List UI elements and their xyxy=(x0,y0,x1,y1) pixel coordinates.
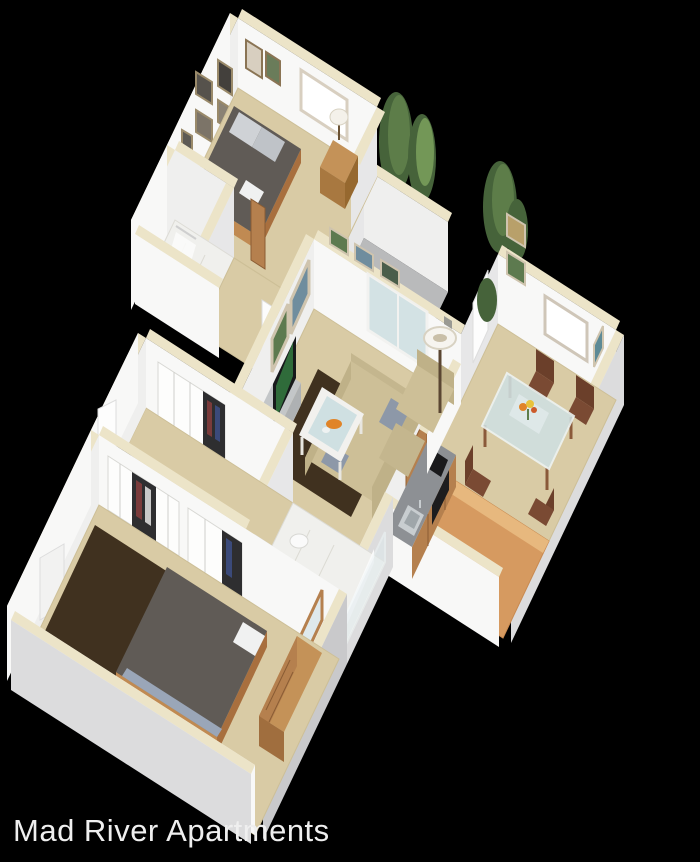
open-door xyxy=(251,199,265,269)
clothes xyxy=(207,400,212,437)
glassware xyxy=(322,427,330,433)
tree-highlight xyxy=(388,95,410,175)
table-lamp xyxy=(330,109,348,125)
clothes xyxy=(136,480,142,520)
toilet xyxy=(290,534,308,548)
clothes xyxy=(226,538,232,578)
clothes xyxy=(145,486,151,526)
food-tray xyxy=(326,419,342,429)
tree-highlight xyxy=(416,118,434,186)
plant-icon xyxy=(477,278,497,322)
clothes xyxy=(215,405,220,442)
caption: Mad River Apartments xyxy=(13,813,330,849)
floorplan-page: Mad River Apartments xyxy=(0,0,700,862)
lamp-inner xyxy=(433,334,447,342)
floorplan-3d-render xyxy=(0,0,700,862)
